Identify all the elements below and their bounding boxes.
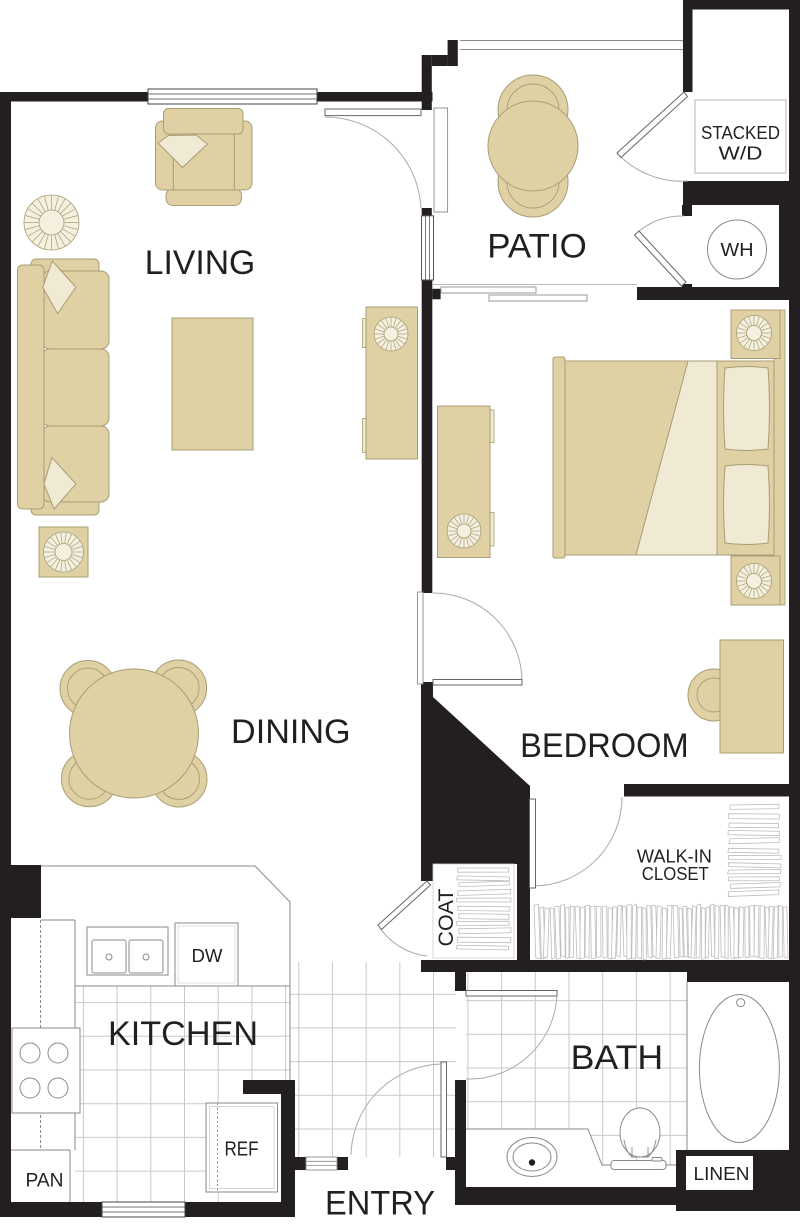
svg-text:WH: WH [721, 240, 754, 260]
svg-text:PAN: PAN [26, 1171, 64, 1192]
svg-text:REF: REF [225, 1139, 259, 1161]
svg-text:W/D: W/D [719, 144, 763, 164]
svg-text:STACKED: STACKED [701, 123, 780, 143]
svg-text:LIVING: LIVING [145, 244, 256, 282]
svg-text:BEDROOM: BEDROOM [520, 727, 689, 765]
svg-text:COAT: COAT [434, 889, 458, 947]
svg-text:DINING: DINING [231, 713, 351, 751]
svg-text:PATIO: PATIO [487, 228, 587, 266]
svg-text:CLOSET: CLOSET [642, 864, 709, 884]
svg-text:KITCHEN: KITCHEN [108, 1015, 258, 1053]
svg-text:LINEN: LINEN [694, 1164, 750, 1184]
svg-text:ENTRY: ENTRY [325, 1185, 435, 1223]
svg-text:DW: DW [192, 945, 224, 966]
svg-text:BATH: BATH [571, 1039, 664, 1077]
